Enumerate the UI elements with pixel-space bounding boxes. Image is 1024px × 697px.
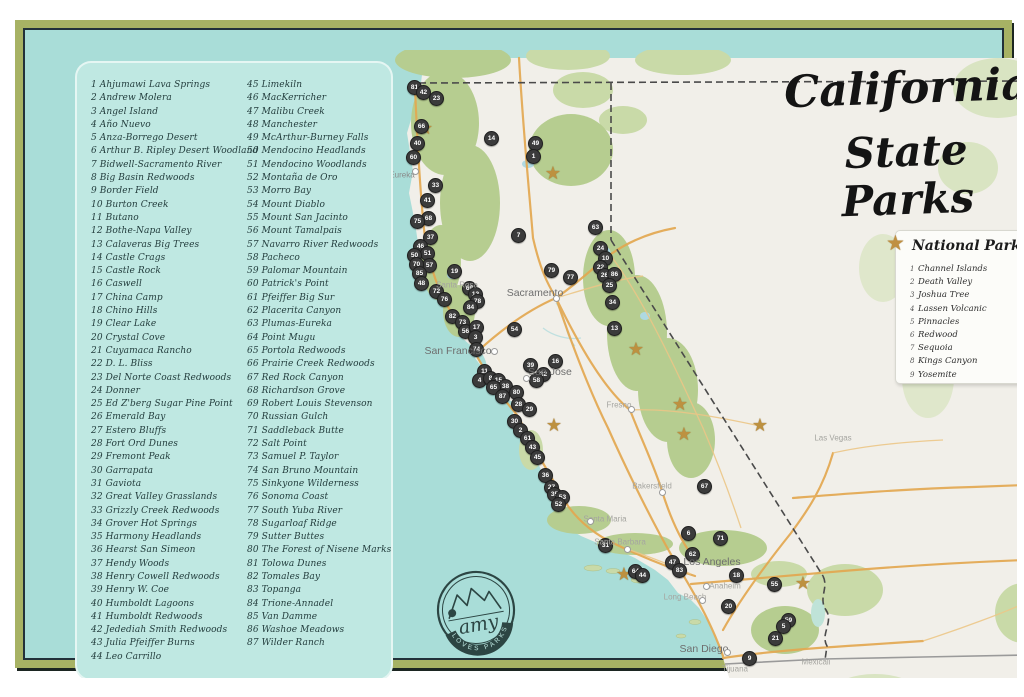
parks-list-column-1: 1 Ahjumawi Lava Springs2 Andrew Molera3 … (91, 79, 247, 669)
park-list-item-48: 48 Manchester (247, 119, 385, 132)
park-list-item-22: 22 D. L. Bliss (91, 358, 247, 371)
legend-item-8: 8Kings Canyon (910, 355, 987, 368)
park-list-item-29: 29 Fremont Peak (91, 451, 247, 464)
park-list-item-1: 1 Ahjumawi Lava Springs (91, 79, 247, 92)
park-list-item-40: 40 Humboldt Lagoons (91, 598, 247, 611)
park-list-item-73: 73 Samuel P. Taylor (247, 451, 385, 464)
park-list-item-34: 34 Grover Hot Springs (91, 518, 247, 531)
park-list-item-12: 12 Bothe-Napa Valley (91, 225, 247, 238)
park-list-item-30: 30 Garrapata (91, 465, 247, 478)
star-icon: ★ (886, 231, 905, 256)
park-list-item-72: 72 Salt Point (247, 438, 385, 451)
park-list-item-84: 84 Trione-Annadel (247, 598, 385, 611)
park-list-item-4: 4 Año Nuevo (91, 119, 247, 132)
park-list-item-50: 50 Mendocino Headlands (247, 145, 385, 158)
park-list-item-25: 25 Ed Z'berg Sugar Pine Point (91, 398, 247, 411)
park-list-item-66: 66 Prairie Creek Redwoods (247, 358, 385, 371)
park-list-item-7: 7 Bidwell-Sacramento River (91, 159, 247, 172)
park-list-item-32: 32 Great Valley Grasslands (91, 491, 247, 504)
park-list-item-55: 55 Mount San Jacinto (247, 212, 385, 225)
park-list-item-70: 70 Russian Gulch (247, 411, 385, 424)
title-line-2: State Parks (779, 124, 1017, 229)
legend-item-4: 4Lassen Volcanic (910, 303, 987, 316)
park-list-item-36: 36 Hearst San Simeon (91, 544, 247, 557)
park-list-item-75: 75 Sinkyone Wilderness (247, 478, 385, 491)
park-list-item-33: 33 Grizzly Creek Redwoods (91, 505, 247, 518)
park-list-item-81: 81 Tolowa Dunes (247, 558, 385, 571)
park-list-item-39: 39 Henry W. Coe (91, 584, 247, 597)
park-list-item-53: 53 Morro Bay (247, 185, 385, 198)
title-line-1: California (780, 60, 1017, 119)
park-list-item-17: 17 China Camp (91, 292, 247, 305)
park-list-item-19: 19 Clear Lake (91, 318, 247, 331)
park-list-item-47: 47 Malibu Creek (247, 106, 385, 119)
park-list-item-15: 15 Castle Rock (91, 265, 247, 278)
legend-item-1: 1Channel Islands (910, 263, 987, 276)
park-list-item-13: 13 Calaveras Big Trees (91, 239, 247, 252)
park-list-item-87: 87 Wilder Ranch (247, 637, 385, 650)
park-list-item-31: 31 Gaviota (91, 478, 247, 491)
park-list-item-78: 78 Sugarloaf Ridge (247, 518, 385, 531)
park-list-item-74: 74 San Bruno Mountain (247, 465, 385, 478)
park-list-item-57: 57 Navarro River Redwoods (247, 239, 385, 252)
park-list-item-51: 51 Mendocino Woodlands (247, 159, 385, 172)
park-list-item-5: 5 Anza-Borrego Desert (91, 132, 247, 145)
stamp-script-text: amy (457, 610, 501, 639)
california-state-parks-poster: LOVES PARKS amy ★★★★★★★★★814223664060144… (0, 0, 1024, 697)
park-list-item-76: 76 Sonoma Coast (247, 491, 385, 504)
park-list-item-24: 24 Donner (91, 385, 247, 398)
map-canvas: LOVES PARKS amy ★★★★★★★★★814223664060144… (40, 50, 1017, 678)
park-list-item-67: 67 Red Rock Canyon (247, 372, 385, 385)
park-list-item-71: 71 Saddleback Butte (247, 425, 385, 438)
park-list-item-14: 14 Castle Crags (91, 252, 247, 265)
park-list-item-18: 18 Chino Hills (91, 305, 247, 318)
park-list-item-44: 44 Leo Carrillo (91, 651, 247, 664)
park-list-item-64: 64 Point Mugu (247, 332, 385, 345)
park-list-item-65: 65 Portola Redwoods (247, 345, 385, 358)
park-list-item-8: 8 Big Basin Redwoods (91, 172, 247, 185)
legend-title: National Parks (912, 238, 1017, 254)
park-list-item-41: 41 Humboldt Redwoods (91, 611, 247, 624)
park-list-item-82: 82 Tomales Bay (247, 571, 385, 584)
park-list-item-37: 37 Hendy Woods (91, 558, 247, 571)
park-list-item-85: 85 Van Damme (247, 611, 385, 624)
parks-list-panel: 1 Ahjumawi Lava Springs2 Andrew Molera3 … (75, 61, 393, 678)
legend-items: 1Channel Islands2Death Valley3Joshua Tre… (910, 263, 987, 382)
poster-title: California State Parks (781, 64, 1017, 224)
park-list-item-28: 28 Fort Ord Dunes (91, 438, 247, 451)
park-list-item-38: 38 Henry Cowell Redwoods (91, 571, 247, 584)
legend-item-7: 7Sequoia (910, 342, 987, 355)
park-list-item-80: 80 The Forest of Nisene Marks (247, 544, 385, 557)
park-list-item-11: 11 Butano (91, 212, 247, 225)
park-list-item-68: 68 Richardson Grove (247, 385, 385, 398)
park-list-item-69: 69 Robert Louis Stevenson (247, 398, 385, 411)
legend-item-5: 5Pinnacles (910, 316, 987, 329)
legend-item-6: 6Redwood (910, 329, 987, 342)
park-list-item-62: 62 Placerita Canyon (247, 305, 385, 318)
park-list-item-86: 86 Washoe Meadows (247, 624, 385, 637)
map-frame: LOVES PARKS amy ★★★★★★★★★814223664060144… (15, 20, 1012, 668)
park-list-item-63: 63 Plumas-Eureka (247, 318, 385, 331)
park-list-item-61: 61 Pfeiffer Big Sur (247, 292, 385, 305)
park-list-item-9: 9 Border Field (91, 185, 247, 198)
park-list-item-21: 21 Cuyamaca Rancho (91, 345, 247, 358)
park-list-item-46: 46 MacKerricher (247, 92, 385, 105)
park-list-item-42: 42 Jedediah Smith Redwoods (91, 624, 247, 637)
park-list-item-52: 52 Montaña de Oro (247, 172, 385, 185)
park-list-item-26: 26 Emerald Bay (91, 411, 247, 424)
park-list-item-6: 6 Arthur B. Ripley Desert Woodland (91, 145, 247, 158)
legend-item-3: 3Joshua Tree (910, 289, 987, 302)
brand-stamp: LOVES PARKS amy (432, 566, 521, 658)
park-list-item-49: 49 McArthur-Burney Falls (247, 132, 385, 145)
park-list-item-23: 23 Del Norte Coast Redwoods (91, 372, 247, 385)
park-list-item-35: 35 Harmony Headlands (91, 531, 247, 544)
park-list-item-59: 59 Palomar Mountain (247, 265, 385, 278)
parks-list-column-2: 45 Limekiln46 MacKerricher47 Malibu Cree… (247, 79, 385, 669)
park-list-item-10: 10 Burton Creek (91, 199, 247, 212)
park-list-item-58: 58 Pacheco (247, 252, 385, 265)
park-list-item-83: 83 Topanga (247, 584, 385, 597)
legend-item-9: 9Yosemite (910, 369, 987, 382)
park-list-item-3: 3 Angel Island (91, 106, 247, 119)
park-list-item-43: 43 Julia Pfeiffer Burns (91, 637, 247, 650)
park-list-item-79: 79 Sutter Buttes (247, 531, 385, 544)
park-list-item-60: 60 Patrick's Point (247, 278, 385, 291)
park-list-item-56: 56 Mount Tamalpais (247, 225, 385, 238)
park-list-item-20: 20 Crystal Cove (91, 332, 247, 345)
park-list-item-2: 2 Andrew Molera (91, 92, 247, 105)
park-list-item-77: 77 South Yuba River (247, 505, 385, 518)
park-list-item-45: 45 Limekiln (247, 79, 385, 92)
park-list-item-16: 16 Caswell (91, 278, 247, 291)
national-parks-legend: ★ National Parks 1Channel Islands2Death … (895, 230, 1017, 384)
legend-item-2: 2Death Valley (910, 276, 987, 289)
park-list-item-27: 27 Estero Bluffs (91, 425, 247, 438)
park-list-item-54: 54 Mount Diablo (247, 199, 385, 212)
